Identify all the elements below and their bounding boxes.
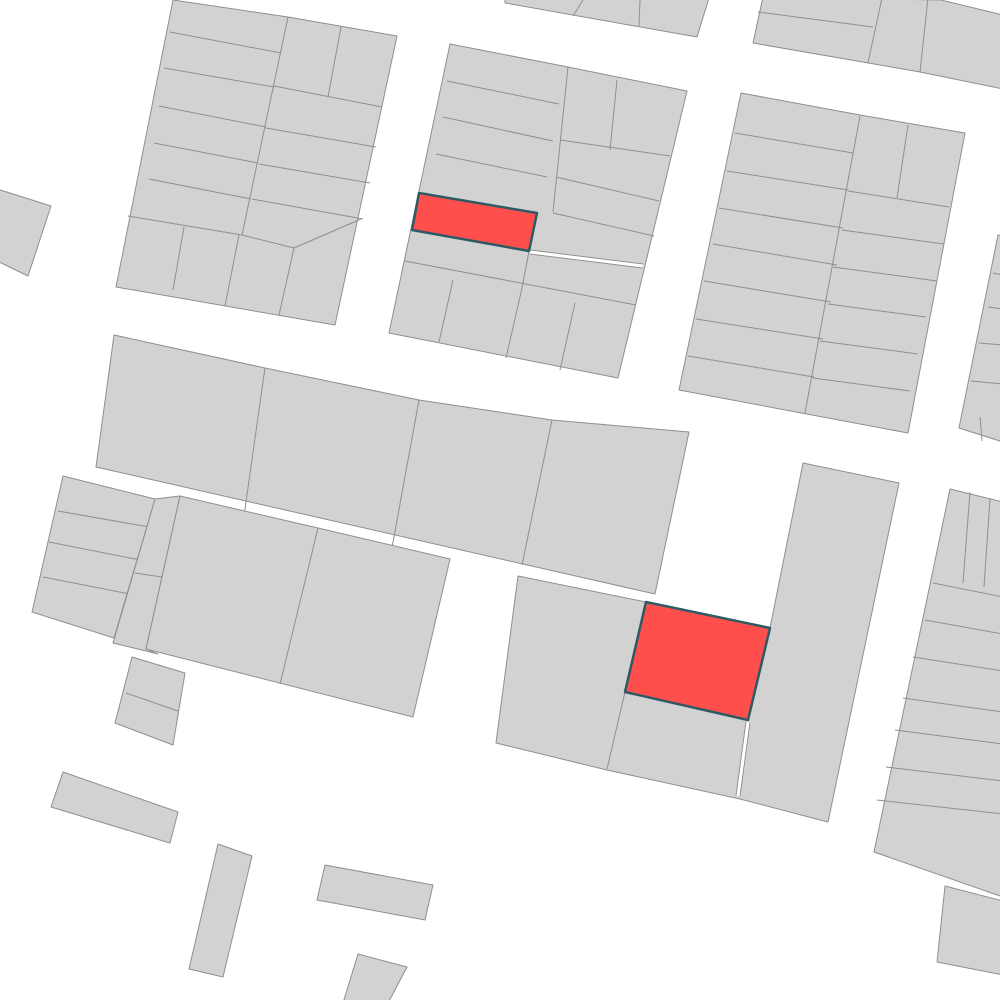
block-top-right[interactable] [679,93,965,433]
map-view [0,0,1000,1000]
block-right-strips[interactable] [874,489,1000,897]
block-left-edge-sliver[interactable] [0,189,51,276]
block-top-strip-west[interactable] [505,0,709,37]
block-top-strip-east[interactable] [753,0,1000,89]
map-canvas[interactable] [0,0,1000,1000]
block-bottom-right-piece[interactable] [937,886,1000,975]
building-bottom-column[interactable] [189,844,252,977]
building-bottom-cut[interactable] [343,954,407,1000]
building-bottom-rect[interactable] [317,865,433,920]
building-bottom-left-long[interactable] [51,772,178,843]
block-right-edge-upper[interactable] [959,235,1000,442]
